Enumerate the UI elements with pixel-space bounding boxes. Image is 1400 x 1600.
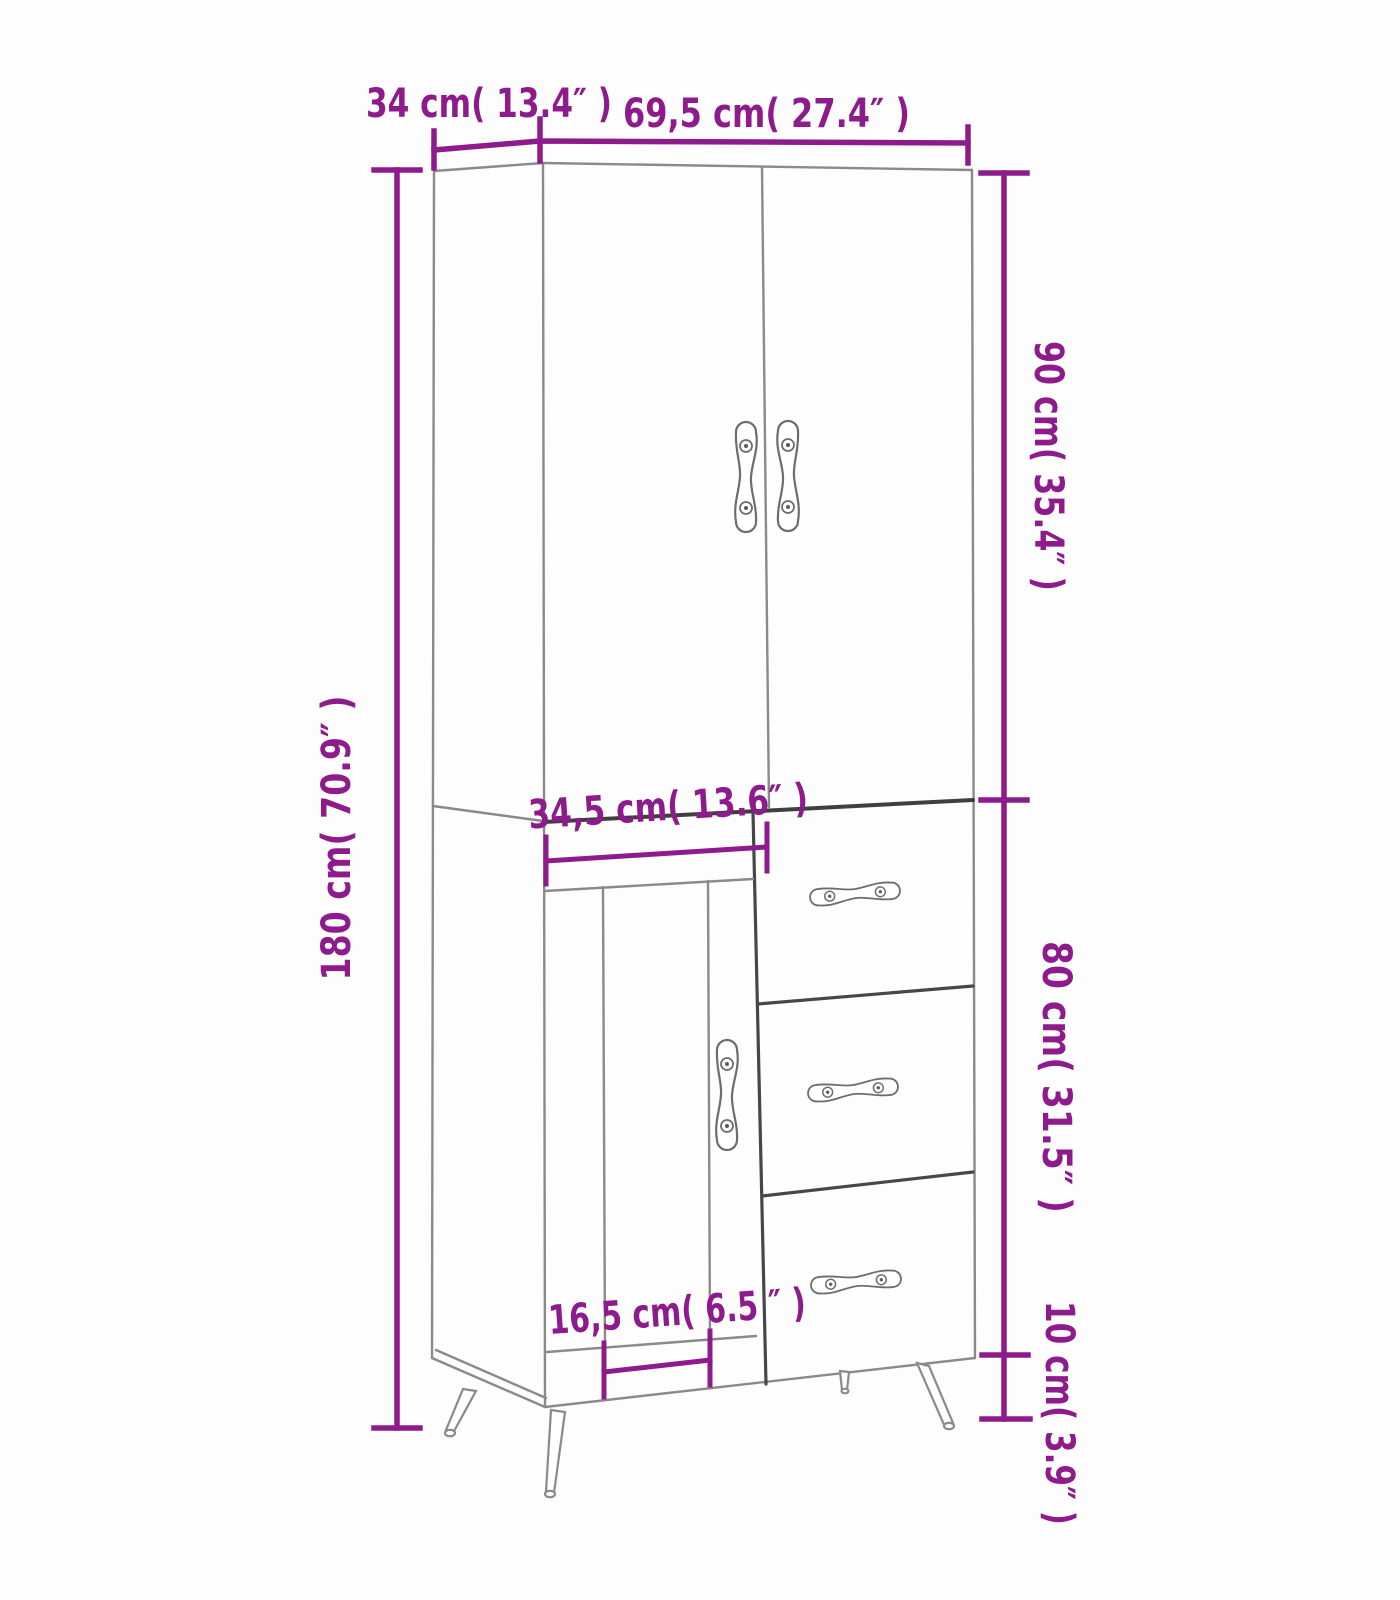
upper-right-door-handle xyxy=(777,421,799,531)
back-right-leg xyxy=(840,1371,849,1390)
side-bottom-edge xyxy=(432,1358,545,1407)
panel-width-dimension-line xyxy=(604,1360,710,1372)
drawer-divider-1 xyxy=(758,986,973,1004)
panel-width-label: 16,5 cm( 6.5 ″ ) xyxy=(547,1280,808,1344)
door-width-dimension-line xyxy=(546,847,767,861)
back-right-leg-foot xyxy=(842,1389,849,1394)
drawer-3-handle xyxy=(810,1269,901,1294)
side-top-edge xyxy=(434,163,543,171)
dimension-lines xyxy=(374,119,1030,1428)
cabinet-dimension-drawing: 34 cm( 13.4″ ) 69,5 cm( 27.4″ ) 90 cm( 3… xyxy=(0,0,1400,1600)
lower-door-top-edge xyxy=(545,879,753,891)
front-top-edge xyxy=(543,163,972,170)
total-height-label: 180 cm( 70.9″ ) xyxy=(314,696,360,981)
width-label: 69,5 cm( 27.4″ ) xyxy=(623,91,910,137)
lower-door-left-panel-line xyxy=(603,887,605,1348)
front-right-edge xyxy=(972,170,975,1358)
lower-door-handle xyxy=(716,1040,738,1150)
dimension-labels: 34 cm( 13.4″ ) 69,5 cm( 27.4″ ) 90 cm( 3… xyxy=(314,81,1082,1525)
front-right-leg xyxy=(917,1363,953,1427)
side-back-edge xyxy=(432,171,434,1358)
front-bottom-edge xyxy=(545,1358,975,1407)
front-left-edge xyxy=(543,163,545,1407)
cabinet-handles xyxy=(716,421,902,1295)
cabinet-legs xyxy=(445,1363,954,1497)
side-middle-seam xyxy=(433,806,543,821)
front-left-leg-foot xyxy=(545,1491,555,1497)
drawer-2-handle xyxy=(807,1077,898,1102)
top-dimension-line xyxy=(434,141,968,150)
lower-door-right-panel-line xyxy=(708,881,710,1341)
depth-label: 34 cm( 13.4″ ) xyxy=(366,81,612,127)
upper-height-label: 90 cm( 35.4″ ) xyxy=(1025,341,1071,591)
drawer-divider-2 xyxy=(762,1172,973,1196)
upper-door-divider xyxy=(762,167,769,807)
drawer-1-handle xyxy=(809,881,900,906)
upper-left-door-handle xyxy=(735,422,757,532)
lower-height-label: 80 cm( 31.5″ ) xyxy=(1033,941,1079,1213)
side-base-inner-edge xyxy=(436,1350,546,1398)
front-left-leg xyxy=(546,1410,565,1493)
leg-height-label: 10 cm( 3.9″ ) xyxy=(1036,1301,1082,1525)
dimension-diagram: 34 cm( 13.4″ ) 69,5 cm( 27.4″ ) 90 cm( 3… xyxy=(0,0,1400,1600)
back-left-leg-foot xyxy=(445,1430,455,1436)
front-right-leg-foot xyxy=(944,1423,954,1429)
back-left-leg xyxy=(446,1389,476,1433)
